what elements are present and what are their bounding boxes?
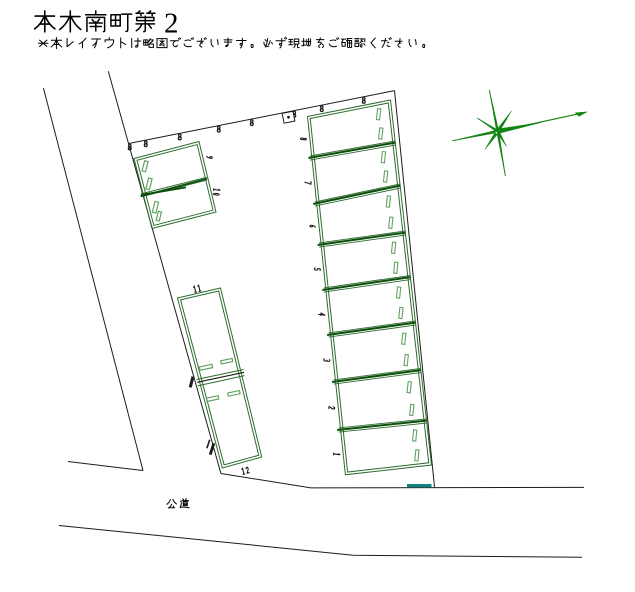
svg-text:2: 2 xyxy=(164,8,179,40)
